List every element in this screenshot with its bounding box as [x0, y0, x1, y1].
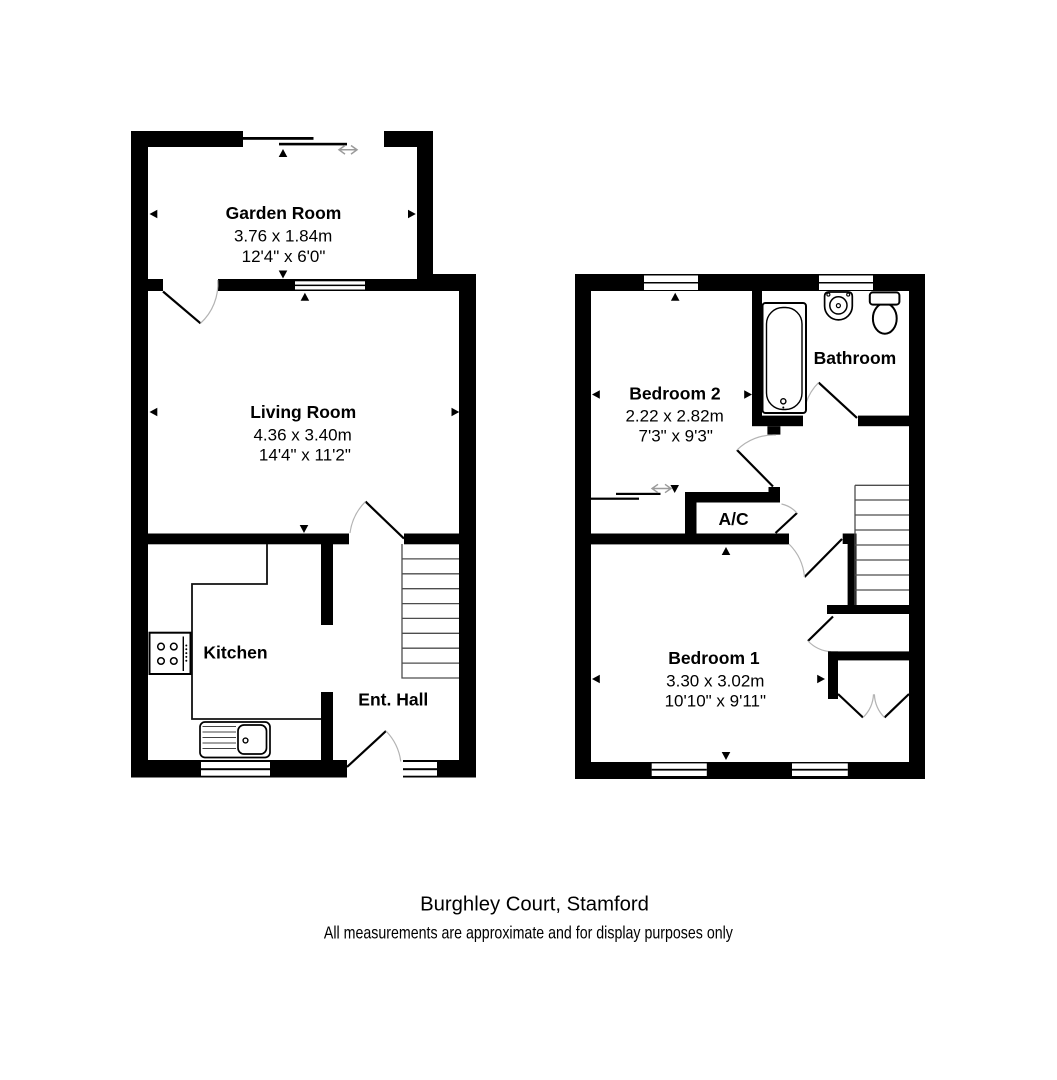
svg-text:Living Room: Living Room	[250, 402, 356, 422]
svg-text:12'4" x 6'0": 12'4" x 6'0"	[242, 247, 326, 266]
svg-text:14'4" x 11'2": 14'4" x 11'2"	[259, 446, 351, 465]
svg-text:All measurements are approxima: All measurements are approximate and for…	[324, 923, 733, 943]
svg-text:A/C: A/C	[719, 509, 750, 529]
svg-text:Bathroom: Bathroom	[814, 348, 897, 368]
svg-text:Burghley Court, Stamford: Burghley Court, Stamford	[420, 894, 649, 916]
svg-text:Ent. Hall: Ent. Hall	[358, 690, 428, 710]
svg-text:Bedroom 1: Bedroom 1	[668, 648, 760, 668]
svg-text:7'3" x 9'3": 7'3" x 9'3"	[639, 427, 713, 446]
svg-text:3.30 x 3.02m: 3.30 x 3.02m	[666, 671, 764, 690]
svg-text:3.76 x 1.84m: 3.76 x 1.84m	[234, 226, 332, 245]
svg-text:4.36 x 3.40m: 4.36 x 3.40m	[253, 425, 351, 444]
svg-text:Bedroom 2: Bedroom 2	[629, 383, 721, 403]
svg-text:Garden Room: Garden Room	[226, 203, 342, 223]
svg-text:Kitchen: Kitchen	[203, 643, 267, 663]
svg-text:2.22 x 2.82m: 2.22 x 2.82m	[625, 406, 723, 425]
svg-text:10'10" x 9'11": 10'10" x 9'11"	[665, 692, 766, 711]
